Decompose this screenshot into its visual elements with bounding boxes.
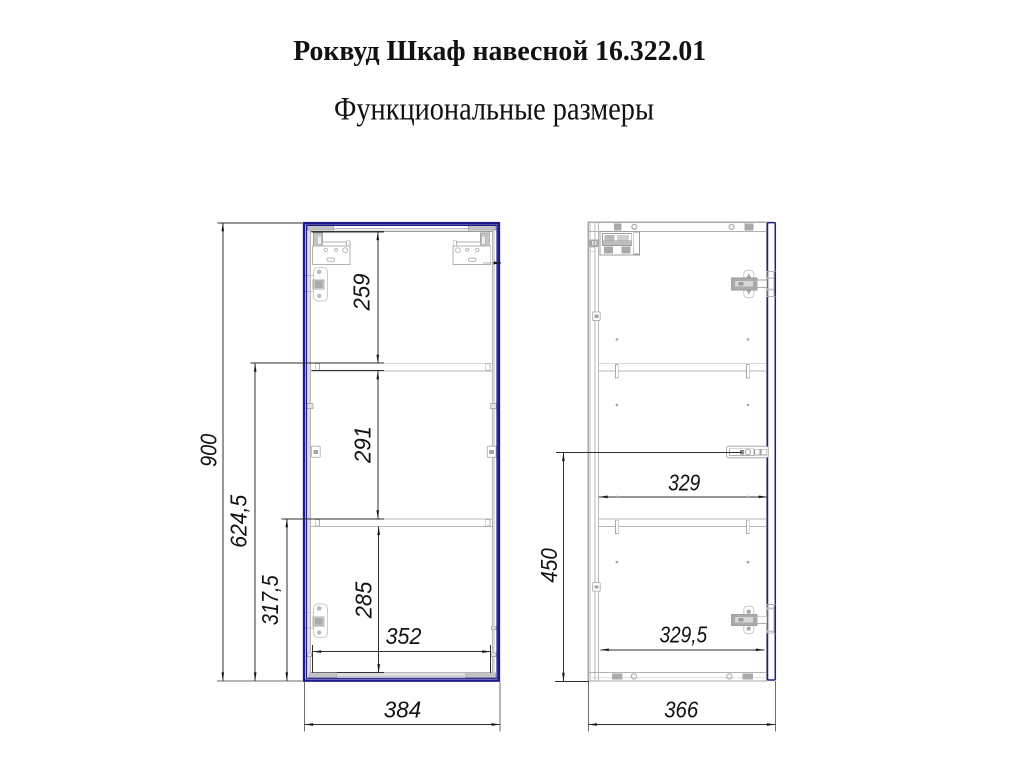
svg-text:352: 352 <box>386 623 422 649</box>
svg-text:384: 384 <box>384 697 421 723</box>
svg-text:Функциональные размеры: Функциональные размеры <box>334 91 654 127</box>
svg-text:366: 366 <box>664 697 698 723</box>
svg-text:329,5: 329,5 <box>659 621 707 647</box>
svg-text:450: 450 <box>536 548 562 583</box>
svg-text:259: 259 <box>348 273 374 311</box>
svg-text:329: 329 <box>668 470 700 496</box>
svg-text:900: 900 <box>195 434 221 467</box>
svg-text:291: 291 <box>349 426 375 464</box>
svg-text:Роквуд Шкаф навесной 16.322.01: Роквуд Шкаф навесной 16.322.01 <box>293 36 706 67</box>
svg-text:317,5: 317,5 <box>257 575 283 625</box>
svg-text:624,5: 624,5 <box>226 495 252 548</box>
svg-text:285: 285 <box>351 582 377 620</box>
